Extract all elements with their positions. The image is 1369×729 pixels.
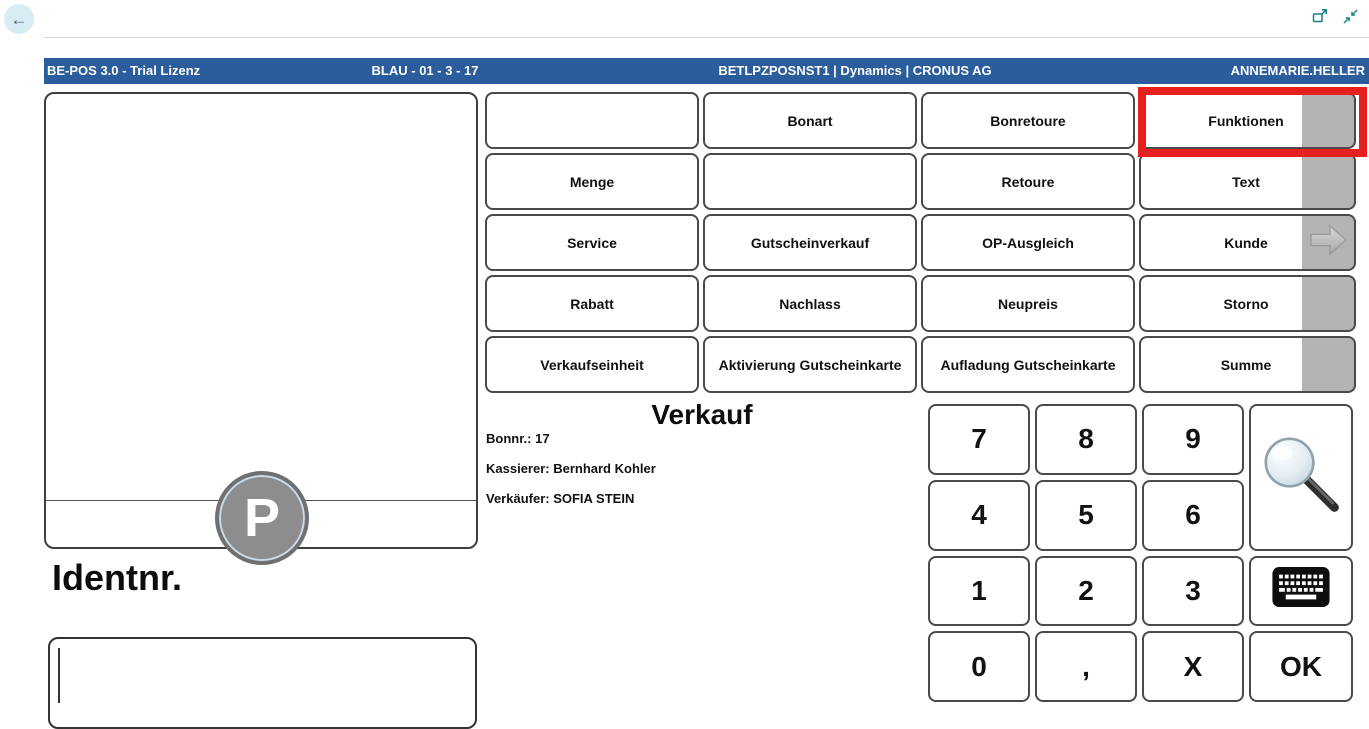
numpad-key-6[interactable]: 6 — [1142, 480, 1244, 551]
app-title: BE-POS 3.0 - Trial Lizenz — [47, 58, 200, 84]
numpad-key-5[interactable]: 5 — [1035, 480, 1137, 551]
pager-next-button[interactable] — [1302, 214, 1356, 271]
pager-cell — [1302, 336, 1356, 393]
function-button-rabatt[interactable]: Rabatt — [485, 275, 699, 332]
function-button-nachlass[interactable]: Nachlass — [703, 275, 917, 332]
function-button-empty-2[interactable] — [703, 153, 917, 210]
cashier-line: Kassierer: Bernhard Kohler — [486, 461, 656, 476]
numpad-key-8[interactable]: 8 — [1035, 404, 1137, 475]
back-button[interactable]: ← — [4, 4, 34, 34]
magnifier-icon — [1257, 430, 1345, 525]
identnr-label: Identnr. — [52, 557, 182, 599]
function-button-aktivierung-gutscheinkarte[interactable]: Aktivierung Gutscheinkarte — [703, 336, 917, 393]
function-button-neupreis[interactable]: Neupreis — [921, 275, 1135, 332]
logo-letter: P — [244, 491, 280, 545]
back-arrow-icon: ← — [11, 11, 28, 28]
parking-logo: P — [215, 471, 309, 565]
function-button-retoure[interactable]: Retoure — [921, 153, 1135, 210]
sale-title: Verkauf — [485, 399, 919, 431]
keyboard-button[interactable] — [1249, 556, 1353, 627]
numpad-key-1[interactable]: 1 — [928, 556, 1030, 627]
function-button-op-ausgleich[interactable]: OP-Ausgleich — [921, 214, 1135, 271]
numpad-key-comma[interactable]: , — [1035, 631, 1137, 702]
numpad-key-clear[interactable]: X — [1142, 631, 1244, 702]
search-button[interactable] — [1249, 404, 1353, 551]
function-button-bonretoure[interactable]: Bonretoure — [921, 92, 1135, 149]
status-header-bar: BE-POS 3.0 - Trial Lizenz BLAU - 01 - 3 … — [44, 58, 1369, 84]
top-divider — [44, 37, 1369, 38]
numpad-key-0[interactable]: 0 — [928, 631, 1030, 702]
function-button-gutscheinverkauf[interactable]: Gutscheinverkauf — [703, 214, 917, 271]
ok-button[interactable]: OK — [1249, 631, 1353, 702]
numpad-key-2[interactable]: 2 — [1035, 556, 1137, 627]
function-button-aufladung-gutscheinkarte[interactable]: Aufladung Gutscheinkarte — [921, 336, 1135, 393]
user-name: ANNEMARIE.HELLER — [1231, 58, 1365, 84]
function-button-grid: Bonart Bonretoure Funktionen Menge Retou… — [485, 92, 1353, 393]
function-button-bonart[interactable]: Bonart — [703, 92, 917, 149]
register-id: BLAU - 01 - 3 - 17 — [325, 58, 525, 84]
function-button-service[interactable]: Service — [485, 214, 699, 271]
text-caret — [58, 648, 60, 703]
pager-cell — [1302, 275, 1356, 332]
function-button-empty-1[interactable] — [485, 92, 699, 149]
pager-cell — [1302, 153, 1356, 210]
numpad-key-4[interactable]: 4 — [928, 480, 1030, 551]
numpad-key-7[interactable]: 7 — [928, 404, 1030, 475]
function-button-menge[interactable]: Menge — [485, 153, 699, 210]
function-button-verkaufseinheit[interactable]: Verkaufseinheit — [485, 336, 699, 393]
pop-out-icon[interactable] — [1312, 8, 1328, 25]
numpad-key-9[interactable]: 9 — [1142, 404, 1244, 475]
pager-cell — [1302, 92, 1356, 149]
environment-info: BETLPZPOSNST1 | Dynamics | CRONUS AG — [705, 58, 1005, 84]
window-controls — [1312, 8, 1359, 25]
identnr-input[interactable] — [48, 637, 477, 729]
collapse-window-icon[interactable] — [1342, 8, 1359, 25]
numpad: 7 8 9 4 5 6 1 2 3 — [928, 404, 1353, 702]
keyboard-icon — [1272, 567, 1330, 614]
right-arrow-icon — [1305, 221, 1351, 264]
receipt-number-line: Bonnr.: 17 — [486, 431, 550, 446]
numpad-key-3[interactable]: 3 — [1142, 556, 1244, 627]
seller-line: Verkäufer: SOFIA STEIN — [486, 491, 634, 506]
